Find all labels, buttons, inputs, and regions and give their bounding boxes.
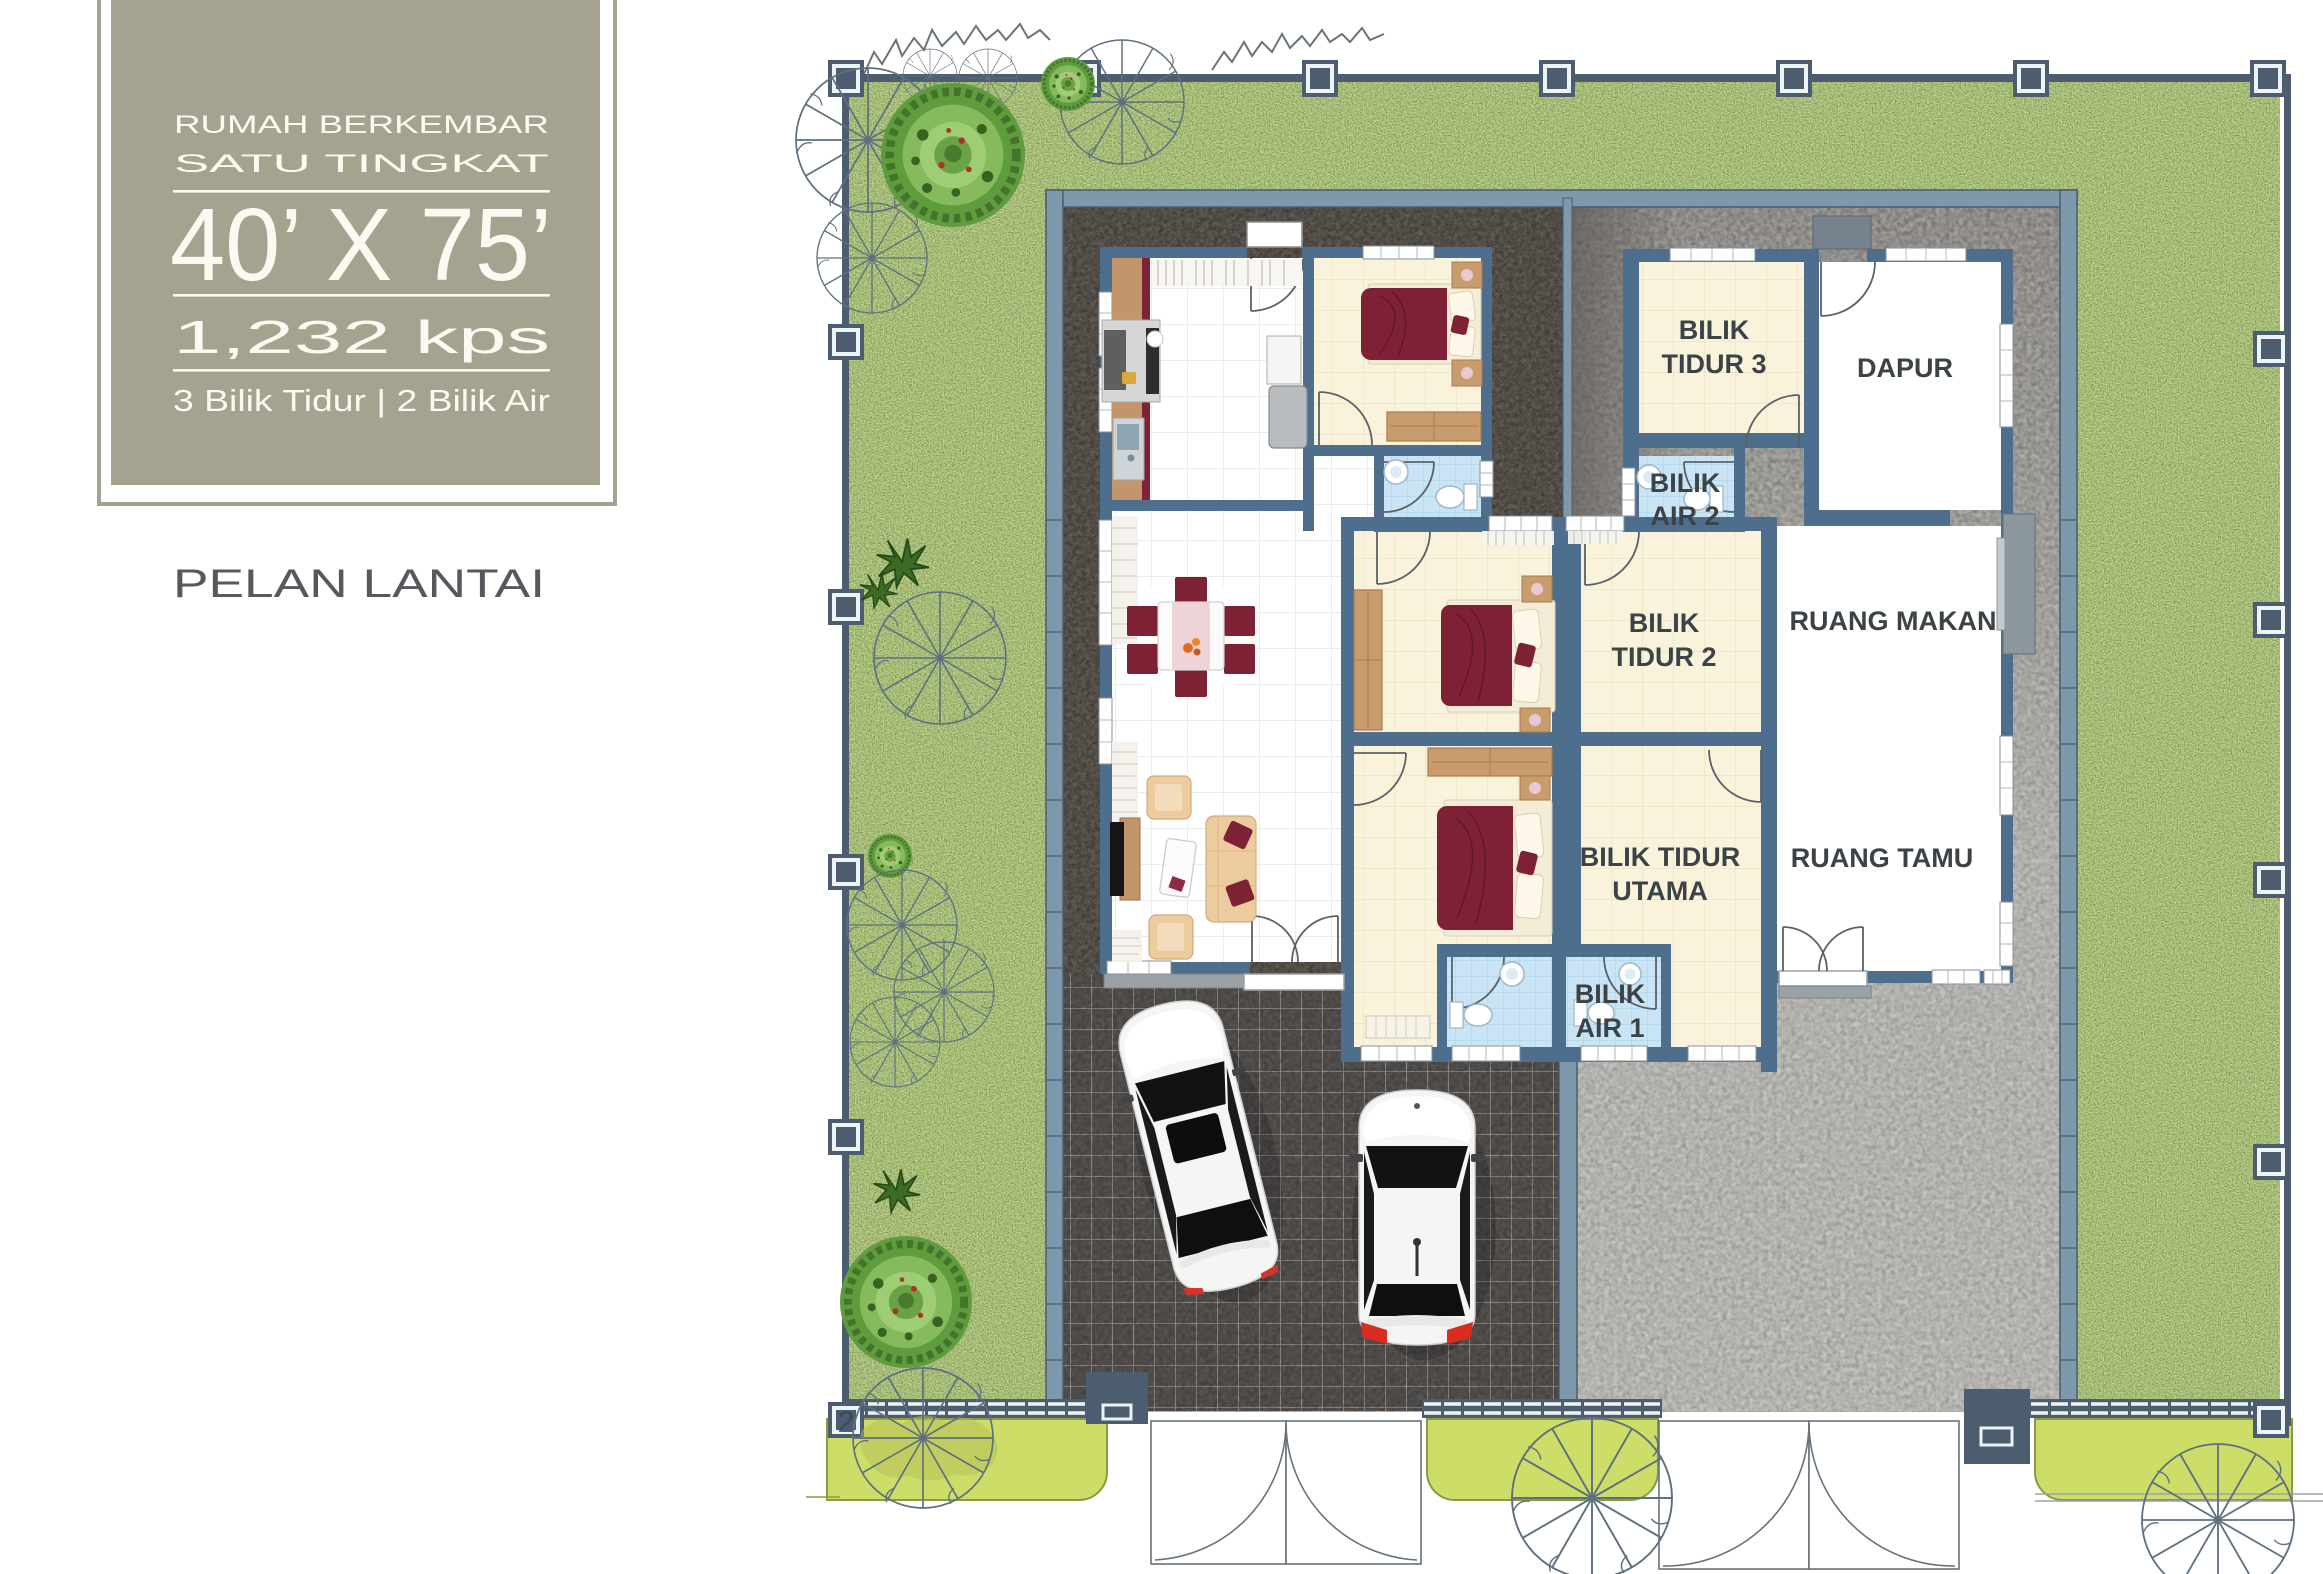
svg-text:BILIK: BILIK [1679,315,1750,345]
svg-text:40’ X 75’: 40’ X 75’ [170,187,552,302]
svg-text:3 Bilik Tidur | 2 Bilik Air: 3 Bilik Tidur | 2 Bilik Air [173,383,550,418]
svg-text:RUANG MAKAN: RUANG MAKAN [1790,606,1997,636]
svg-text:TIDUR 3: TIDUR 3 [1661,349,1766,379]
svg-text:BILIK: BILIK [1629,608,1700,638]
svg-text:1,232 kps: 1,232 kps [173,311,550,363]
svg-text:UTAMA: UTAMA [1612,876,1707,906]
svg-text:BILIK TIDUR: BILIK TIDUR [1580,842,1740,872]
svg-text:BILIK: BILIK [1575,979,1646,1009]
svg-text:2: 2 [838,1406,855,1439]
svg-text:RUMAH BERKEMBAR: RUMAH BERKEMBAR [174,111,549,139]
svg-text:SATU TINGKAT: SATU TINGKAT [174,150,549,178]
svg-text:TIDUR 2: TIDUR 2 [1611,642,1716,672]
svg-text:AIR 2: AIR 2 [1650,501,1719,531]
svg-text:RUANG TAMU: RUANG TAMU [1791,843,1973,873]
svg-text:AIR 1: AIR 1 [1575,1013,1644,1043]
svg-text:DAPUR: DAPUR [1857,353,1953,383]
svg-text:PELAN LANTAI: PELAN LANTAI [173,562,545,606]
svg-text:BILIK: BILIK [1650,468,1721,498]
